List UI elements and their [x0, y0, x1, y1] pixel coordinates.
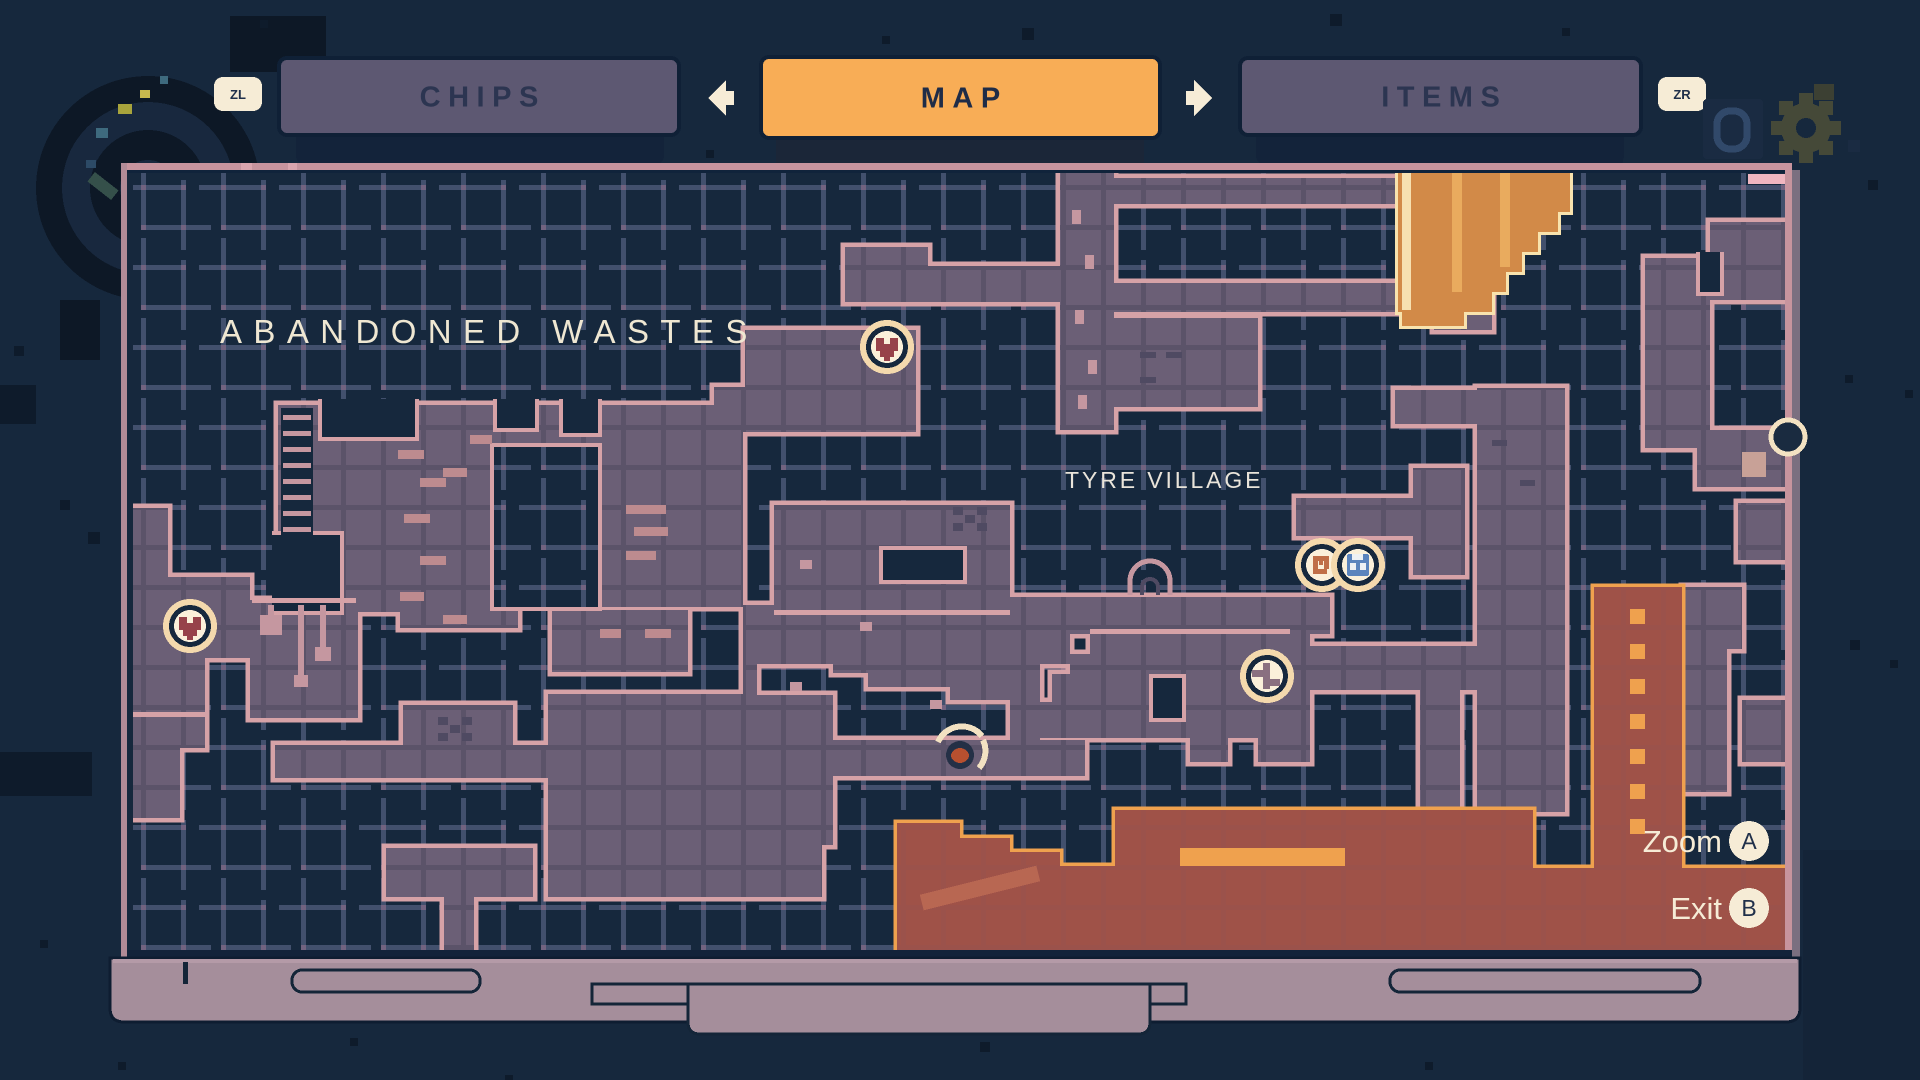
svg-text:TYRE VILLAGE: TYRE VILLAGE — [1065, 467, 1263, 493]
svg-text:B: B — [1741, 895, 1756, 921]
svg-text:Zoom: Zoom — [1643, 824, 1722, 859]
svg-text:ABANDONED WASTES: ABANDONED WASTES — [220, 313, 759, 350]
svg-text:Exit: Exit — [1670, 891, 1722, 926]
svg-text:CHIPS: CHIPS — [420, 82, 546, 114]
svg-text:ZL: ZL — [230, 87, 246, 102]
svg-text:ZR: ZR — [1673, 87, 1691, 102]
svg-text:ITEMS: ITEMS — [1381, 82, 1507, 114]
svg-text:MAP: MAP — [921, 83, 1008, 115]
svg-text:A: A — [1741, 828, 1757, 854]
